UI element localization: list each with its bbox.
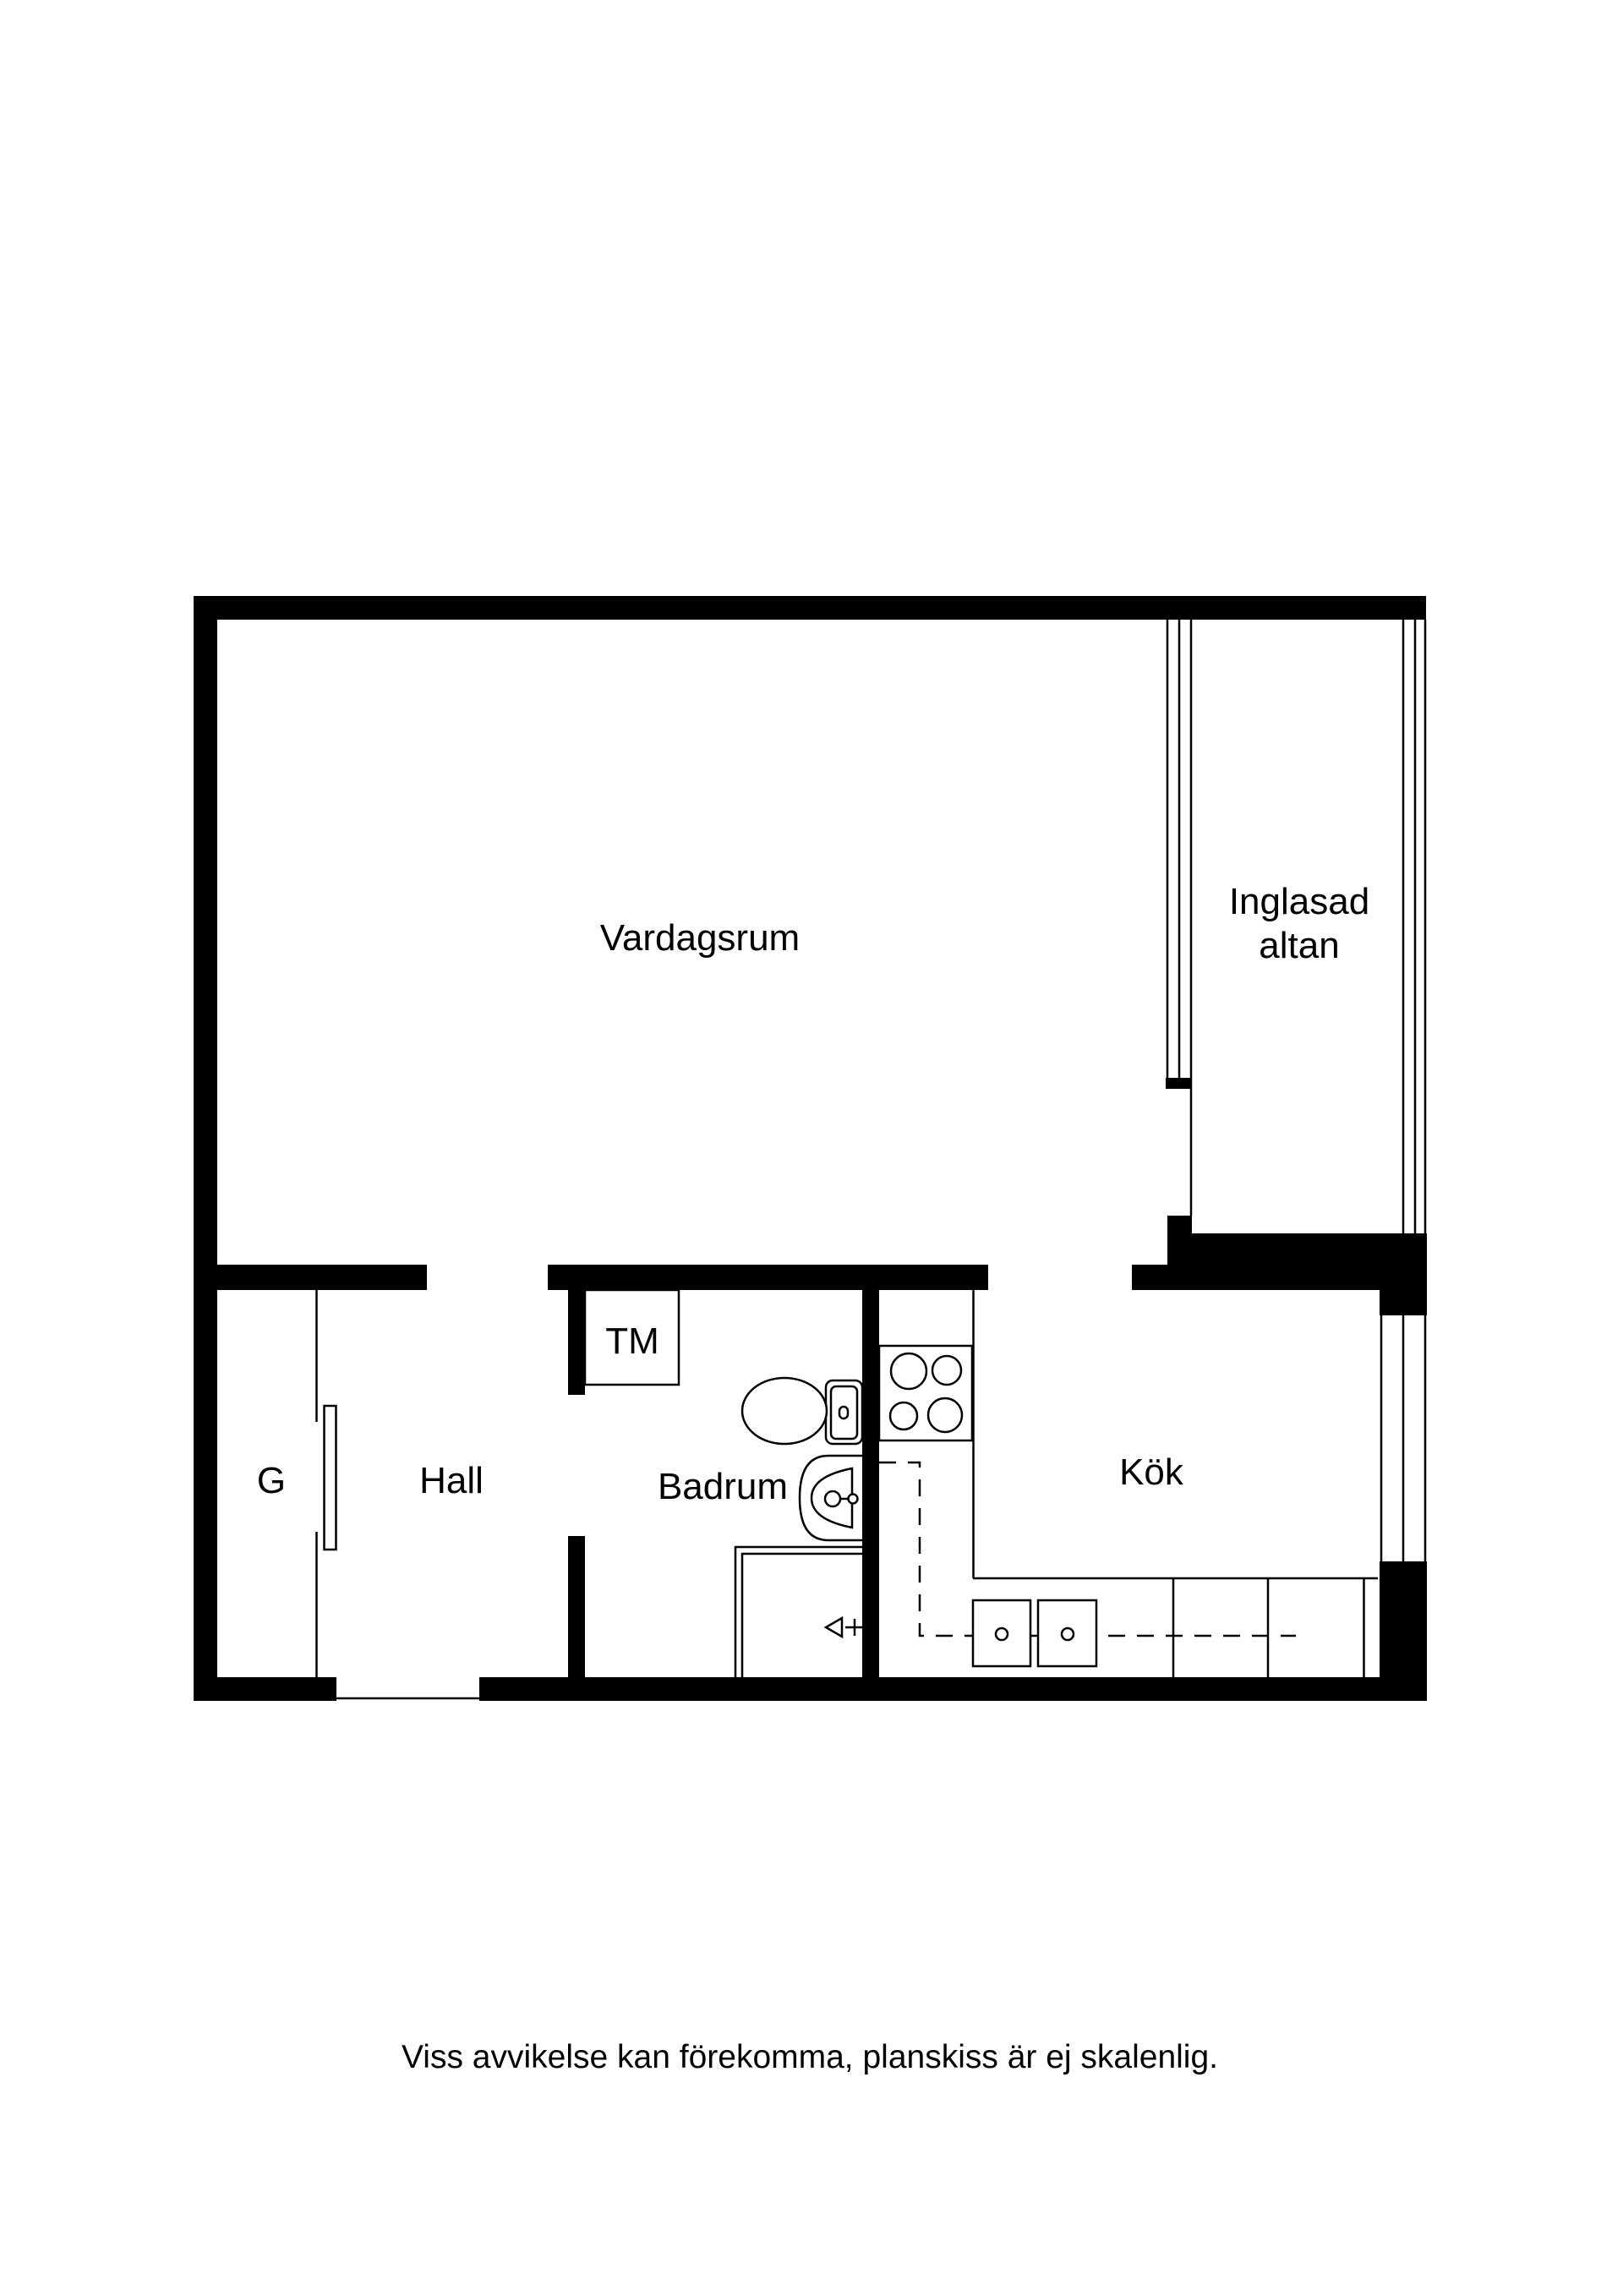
disclaimer-text: Viss avvikelse kan förekomma, planskiss … xyxy=(402,2039,1218,2075)
wall-vardagsrum-kok xyxy=(1192,1233,1427,1290)
label-tvattmaskin: TM xyxy=(605,1320,659,1362)
balcony-right-window xyxy=(1403,620,1425,1233)
wall-outer-left xyxy=(194,596,217,1701)
toilet-bowl xyxy=(742,1378,827,1444)
kitchen-window xyxy=(1381,1315,1425,1561)
shower-valve-icon xyxy=(826,1618,842,1637)
stove xyxy=(879,1346,972,1440)
wall-balcony-sill xyxy=(1166,1078,1190,1089)
stove-burner xyxy=(891,1353,926,1389)
label-kok: Kök xyxy=(1119,1451,1184,1493)
bathroom-sink-faucet-handle xyxy=(849,1495,858,1504)
label-vardagsrum: Vardagsrum xyxy=(600,917,800,959)
shower-enclosure-outer xyxy=(735,1547,862,1677)
wall-hall-vardagsrum-left xyxy=(217,1265,427,1290)
wall-kok-right-upper-block xyxy=(1380,1290,1427,1315)
label-inglasad-altan-line2: altan xyxy=(1259,925,1339,966)
label-garderob: G xyxy=(257,1460,286,1501)
toilet-flush-button xyxy=(839,1407,848,1419)
wall-kok-entry-stub xyxy=(1132,1265,1167,1290)
wall-balcony-step xyxy=(1167,1216,1192,1290)
wall-tm-left xyxy=(568,1290,585,1395)
label-inglasad-altan-line1: Inglasad xyxy=(1229,881,1369,922)
wall-hall-badrum-lower xyxy=(568,1536,585,1677)
wall-outer-top xyxy=(194,596,1426,620)
shower-enclosure-inner xyxy=(742,1554,862,1677)
bathroom-sink xyxy=(800,1456,862,1540)
shower xyxy=(735,1547,863,1677)
toilet xyxy=(742,1378,862,1444)
balcony-left-window xyxy=(1167,620,1191,1216)
closet-sliding-door xyxy=(317,1290,336,1677)
floor-plan: Vardagsrum Inglasad altan G Hall TM Badr… xyxy=(0,0,1623,2296)
bathroom-sink-faucet xyxy=(825,1491,840,1506)
kitchen-sink-drain xyxy=(1062,1628,1074,1640)
label-hall: Hall xyxy=(419,1460,484,1501)
closet-door-leaf xyxy=(325,1406,336,1550)
stove-burner xyxy=(928,1398,962,1432)
wall-outer-bottom-main xyxy=(479,1677,1427,1701)
label-badrum: Badrum xyxy=(658,1466,788,1507)
kitchen-sink-drain xyxy=(996,1628,1008,1640)
stove-burner xyxy=(890,1402,917,1430)
fixtures xyxy=(735,1346,1096,1677)
wall-badrum-kok xyxy=(862,1290,879,1677)
kitchen-sink xyxy=(973,1600,1096,1666)
wall-kok-right-lower xyxy=(1380,1561,1427,1701)
wall-hall-vardagsrum-right xyxy=(548,1265,988,1290)
stove-burner xyxy=(932,1356,961,1385)
floor-plan-page: Vardagsrum Inglasad altan G Hall TM Badr… xyxy=(0,0,1623,2296)
wall-outer-bottom-left xyxy=(194,1677,336,1701)
